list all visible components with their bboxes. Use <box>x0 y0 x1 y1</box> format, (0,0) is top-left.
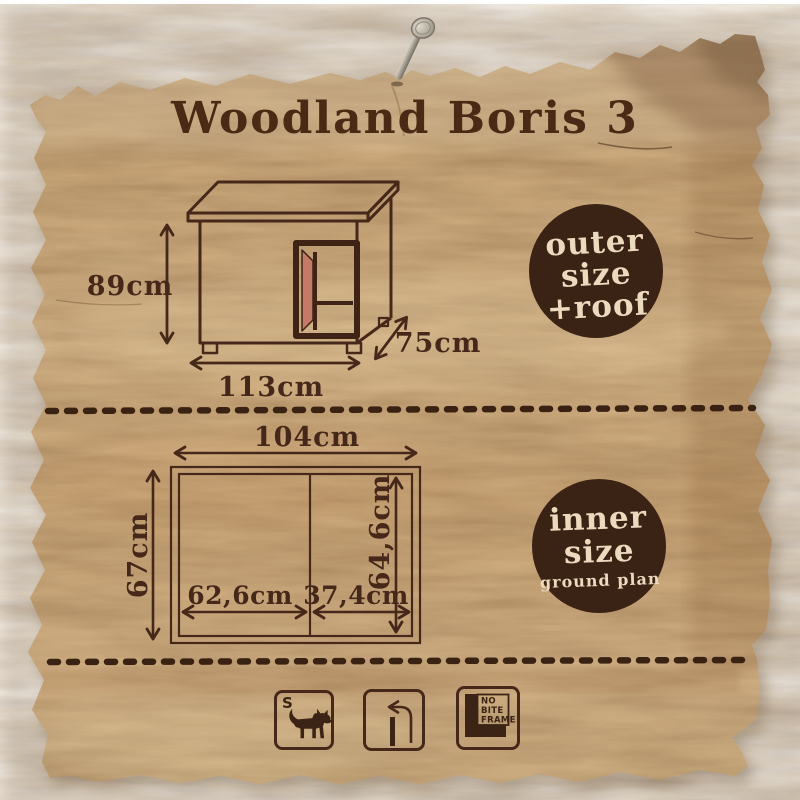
poster-title: Woodland Boris 3 <box>170 93 639 144</box>
inner-size-badge: inner size ground plan <box>532 479 666 613</box>
poster-graphic: Woodland Boris 3 89cm 113cm 75cm outer s… <box>0 0 800 800</box>
frame-text-line3: FRAME <box>481 716 516 726</box>
outer-size-badge: outer size +roof <box>529 204 663 338</box>
width-dimension-label: 113cm <box>218 372 324 403</box>
poster: Woodland Boris 3 89cm 113cm 75cm outer s… <box>0 0 800 800</box>
plan-left-width-label: 62,6cm <box>187 581 293 610</box>
plan-depth-label: 67cm <box>123 512 154 599</box>
dog-size-label: S <box>282 694 293 712</box>
depth-dimension-label: 75cm <box>395 328 482 359</box>
height-dimension-label: 89cm <box>87 271 174 302</box>
plan-inner-depth-label: 64,6cm <box>365 474 396 591</box>
frame-text-line2: BITE <box>481 706 503 716</box>
frame-text-line1: NO <box>481 697 496 707</box>
divider-dashed-bottom <box>50 660 746 662</box>
plan-right-width-label: 37,4cm <box>303 581 409 610</box>
door-panel-bar <box>390 717 395 746</box>
inner-badge-line2: size <box>563 533 635 571</box>
plan-width-label: 104cm <box>254 422 360 453</box>
outer-badge-line3: +roof <box>546 286 650 327</box>
